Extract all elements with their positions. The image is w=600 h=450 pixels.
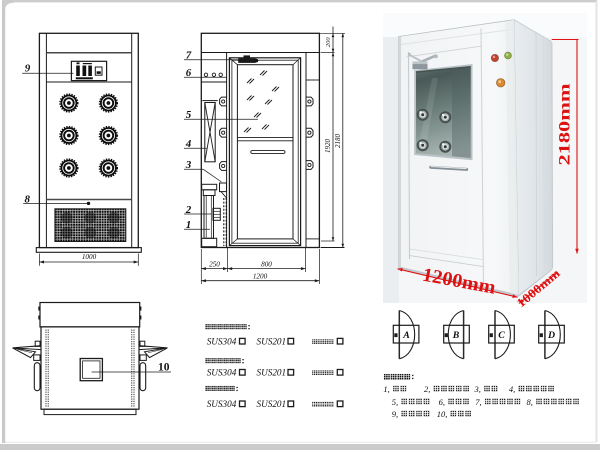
svg-text:D: D <box>547 330 555 341</box>
svg-text:SUS304: SUS304 <box>207 367 237 377</box>
svg-text:800: 800 <box>261 260 272 268</box>
svg-text:200: 200 <box>325 37 332 48</box>
svg-text:2180: 2180 <box>334 134 342 149</box>
svg-text:2180mm: 2180mm <box>557 83 574 166</box>
svg-text:9,: 9, <box>392 409 398 419</box>
svg-text:5,: 5, <box>392 397 398 407</box>
svg-text:3,: 3, <box>474 384 481 394</box>
svg-text:7,: 7, <box>475 397 481 407</box>
svg-text:6,: 6, <box>439 397 445 407</box>
svg-text:1,: 1, <box>383 384 389 394</box>
svg-text:SUS304: SUS304 <box>207 336 237 346</box>
svg-text:9: 9 <box>25 62 31 74</box>
svg-text:1920: 1920 <box>324 139 332 154</box>
svg-text:10,: 10, <box>437 409 448 419</box>
svg-text:4,: 4, <box>509 384 515 394</box>
svg-text:A: A <box>402 330 410 341</box>
svg-text:2,: 2, <box>424 384 430 394</box>
svg-text:SUS304: SUS304 <box>207 399 237 409</box>
svg-text:10: 10 <box>158 362 170 374</box>
svg-text:SUS201: SUS201 <box>257 399 287 409</box>
svg-text:250: 250 <box>209 260 220 268</box>
svg-text:C: C <box>498 330 505 341</box>
svg-text:8,: 8, <box>527 397 533 407</box>
svg-text:SUS201: SUS201 <box>257 367 287 377</box>
svg-text:SUS201: SUS201 <box>257 336 287 346</box>
svg-text:1200: 1200 <box>253 273 268 281</box>
svg-text:1000: 1000 <box>82 253 97 261</box>
svg-text:B: B <box>452 330 460 341</box>
